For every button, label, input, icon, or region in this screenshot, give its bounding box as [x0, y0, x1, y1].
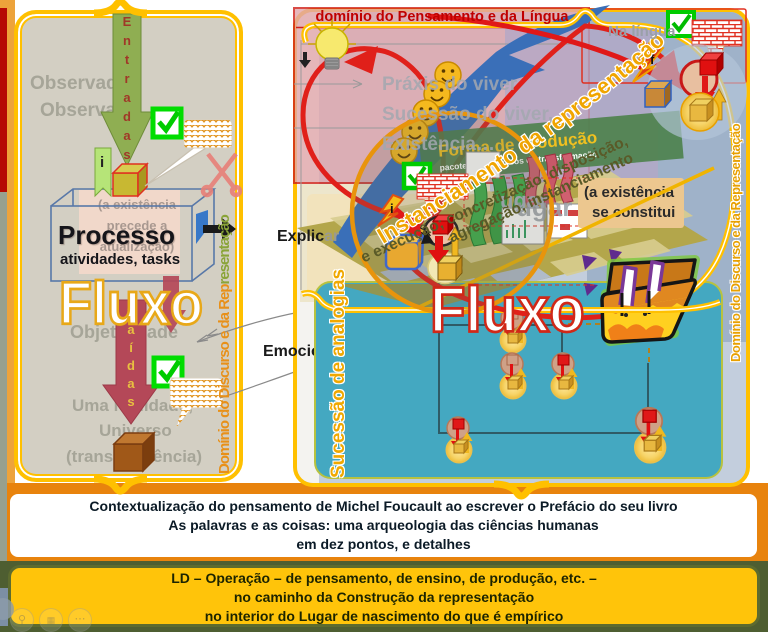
svg-text:i: i [390, 201, 394, 216]
